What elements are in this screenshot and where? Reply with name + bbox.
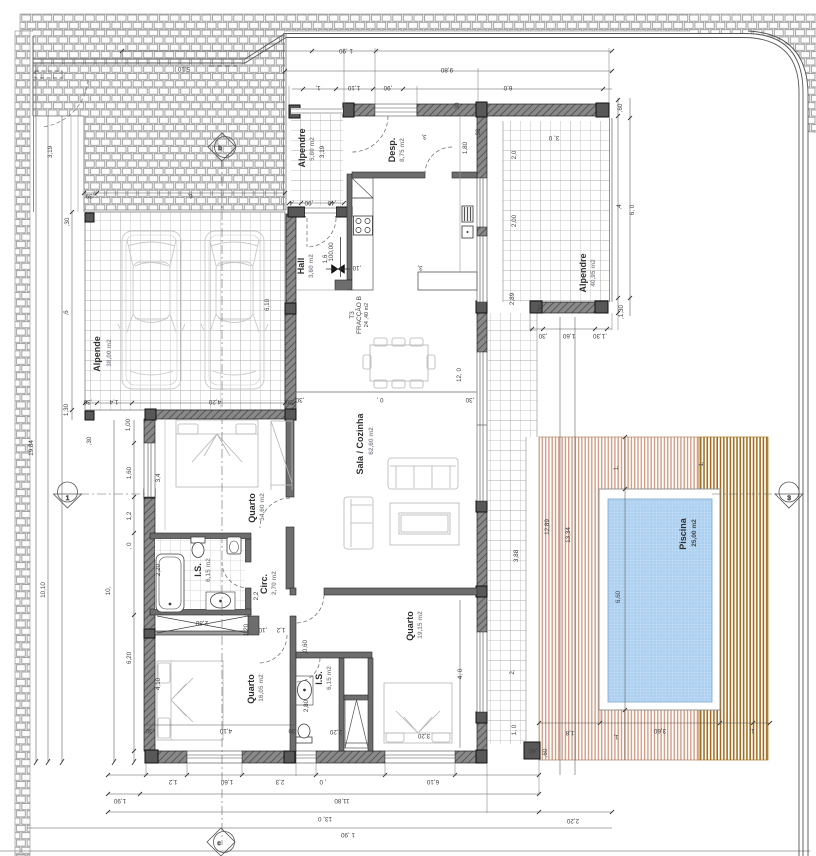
- svg-text:24 ,40 m2: 24 ,40 m2: [364, 303, 370, 327]
- svg-text:3,: 3,: [421, 133, 427, 140]
- svg-text:3,4: 3,4: [155, 473, 162, 482]
- svg-text:,30: ,30: [538, 332, 547, 339]
- svg-text:6,15 m2: 6,15 m2: [205, 558, 212, 582]
- svg-text:1,: 1,: [613, 465, 620, 471]
- svg-text:6, 0: 6, 0: [629, 204, 636, 215]
- svg-text:4,10: 4,10: [219, 727, 232, 734]
- svg-text:14,60 m2: 14,60 m2: [259, 493, 266, 521]
- svg-text:, 0: , 0: [126, 542, 133, 549]
- svg-text:1,80: 1,80: [462, 141, 469, 154]
- svg-text:13, 0: 13, 0: [318, 815, 333, 822]
- svg-text:3,19: 3,19: [319, 145, 326, 158]
- svg-text:,40: ,40: [327, 199, 336, 206]
- svg-text:b: b: [218, 145, 222, 152]
- svg-text:62,60 m2: 62,60 m2: [368, 427, 375, 455]
- svg-text:I.S.: I.S.: [314, 671, 324, 685]
- svg-text:2,80: 2,80: [303, 699, 310, 712]
- svg-text:,30: ,30: [475, 128, 482, 137]
- svg-text:T3: T3: [349, 311, 356, 319]
- svg-text:,30: ,30: [285, 398, 294, 405]
- svg-text:13,34: 13,34: [565, 527, 572, 543]
- svg-text:11,80: 11,80: [334, 797, 350, 804]
- svg-text:10,: 10,: [105, 586, 112, 595]
- svg-text:4,20: 4,20: [208, 398, 221, 405]
- svg-text:2,80: 2,80: [195, 619, 208, 626]
- svg-text:1,: 1,: [315, 84, 321, 91]
- svg-text:Circ.: Circ.: [259, 574, 269, 594]
- svg-text:2,3: 2,3: [275, 778, 284, 785]
- svg-text:30: 30: [454, 102, 461, 110]
- svg-text:,60: ,60: [528, 747, 537, 754]
- svg-text:8,75 m2: 8,75 m2: [399, 138, 406, 162]
- svg-text:2,20: 2,20: [566, 817, 579, 824]
- svg-text:1,20: 1,20: [243, 623, 250, 636]
- svg-text:19,84: 19,84: [28, 440, 35, 456]
- svg-text:,30: ,30: [64, 217, 71, 226]
- svg-text:1,10: 1,10: [347, 84, 360, 91]
- svg-text:2,20: 2,20: [155, 563, 162, 576]
- svg-text:16,05 m2: 16,05 m2: [258, 674, 265, 702]
- svg-text:,6: ,6: [63, 310, 70, 316]
- svg-text:2,89: 2,89: [509, 292, 516, 305]
- svg-text:4,10: 4,10: [155, 677, 162, 690]
- svg-text:1,90: 1,90: [113, 797, 126, 804]
- svg-text:1,2: 1,2: [276, 626, 285, 633]
- svg-text:5,10: 5,10: [177, 65, 190, 72]
- svg-text:1,00: 1,00: [125, 418, 132, 431]
- svg-text:Quarto: Quarto: [246, 674, 256, 704]
- svg-text:2,70 m2: 2,70 m2: [271, 571, 278, 595]
- svg-text:3,88: 3,88: [513, 549, 520, 562]
- svg-text:1 ,90: 1 ,90: [341, 831, 356, 838]
- svg-text:,60: ,60: [617, 103, 624, 112]
- svg-text:FRACÇÃO B: FRACÇÃO B: [354, 296, 363, 334]
- svg-text:,39: ,39: [85, 192, 94, 199]
- svg-text:Desp.: Desp.: [387, 138, 397, 163]
- svg-text:1,8: 1,8: [565, 729, 574, 736]
- svg-text:,30: ,30: [465, 396, 474, 403]
- svg-text:1,2: 1,2: [168, 778, 177, 785]
- svg-text:6,60: 6,60: [615, 590, 622, 603]
- svg-text:6,: 6,: [187, 192, 193, 199]
- svg-text:12,89: 12,89: [544, 519, 551, 535]
- svg-text:,1,30: ,1,30: [618, 305, 625, 320]
- svg-text:40,95 m2: 40,95 m2: [590, 259, 597, 287]
- svg-text:5,80 m2: 5,80 m2: [309, 137, 316, 161]
- svg-text:6,0: 6,0: [503, 84, 512, 91]
- svg-text:6,20: 6,20: [126, 651, 133, 664]
- svg-text:2,20: 2,20: [329, 728, 342, 735]
- svg-text:3,60: 3,60: [653, 727, 666, 734]
- svg-text:I.S.: I.S.: [193, 563, 203, 577]
- svg-text:2,2: 2,2: [253, 591, 260, 600]
- svg-text:1, 0: 1, 0: [511, 724, 518, 735]
- svg-text:1,60: 1,60: [220, 778, 233, 785]
- svg-text:0 ,: 0 ,: [376, 396, 383, 403]
- svg-text:1,: 1,: [749, 727, 755, 734]
- svg-text:3, 0: 3, 0: [548, 134, 559, 141]
- svg-text:,90: ,90: [304, 199, 313, 206]
- svg-text:,30: ,30: [295, 396, 304, 403]
- svg-text:1,30: 1,30: [63, 403, 70, 416]
- svg-text:10,10: 10,10: [40, 582, 47, 598]
- svg-text:1: 1: [66, 495, 70, 502]
- svg-text:Sala / Cozinha: Sala / Cozinha: [355, 412, 365, 474]
- svg-text:6,15 m2: 6,15 m2: [326, 666, 333, 690]
- svg-text:30: 30: [537, 304, 544, 312]
- svg-text:1,4: 1,4: [109, 398, 118, 405]
- svg-text:1,: 1,: [698, 461, 705, 467]
- svg-text:9,80: 9,80: [440, 66, 453, 73]
- svg-text:,60: ,60: [542, 748, 549, 757]
- svg-text:Quarto: Quarto: [405, 611, 415, 641]
- svg-text:1,2: 1,2: [126, 511, 133, 520]
- svg-text:2,00: 2,00: [511, 214, 518, 227]
- svg-text:3,20: 3,20: [417, 732, 430, 739]
- svg-text:Alpende: Alpende: [92, 336, 102, 372]
- svg-text:3,60 m2: 3,60 m2: [308, 254, 315, 278]
- svg-text:1,60: 1,60: [562, 332, 575, 339]
- svg-text:2,0: 2,0: [511, 150, 518, 159]
- svg-text:1 ,90: 1 ,90: [339, 47, 354, 54]
- svg-text:,30: ,30: [145, 727, 154, 734]
- svg-text:Alpendre: Alpendre: [578, 253, 588, 292]
- svg-text:4, 0: 4, 0: [457, 668, 464, 679]
- svg-text:,10: ,10: [352, 264, 361, 271]
- svg-text:38,00 m2: 38,00 m2: [106, 339, 113, 367]
- svg-text:,90: ,90: [383, 84, 392, 91]
- svg-text:, 0: , 0: [319, 778, 326, 785]
- svg-text:25,00 m2: 25,00 m2: [691, 519, 698, 547]
- svg-text:Quarto: Quarto: [247, 493, 257, 523]
- svg-text:19,15 m2: 19,15 m2: [417, 611, 424, 639]
- svg-text:1,: 1,: [613, 733, 619, 740]
- svg-text:2,: 2,: [509, 669, 516, 675]
- svg-text:,4: ,4: [289, 199, 295, 206]
- svg-text:,1,30: ,1,30: [593, 332, 608, 339]
- svg-text:12, 0: 12, 0: [456, 368, 463, 383]
- svg-text:30: 30: [288, 727, 296, 734]
- svg-text:6,10: 6,10: [426, 778, 439, 785]
- svg-text:Hall: Hall: [296, 258, 306, 275]
- svg-text:Alpendre: Alpendre: [297, 128, 307, 167]
- svg-text:Piscina: Piscina: [678, 517, 688, 550]
- svg-text:3,: 3,: [417, 264, 423, 271]
- svg-text:,30: ,30: [83, 398, 92, 405]
- svg-text:,10: ,10: [258, 626, 267, 633]
- svg-text:6,10: 6,10: [264, 298, 271, 311]
- svg-text:,4: ,4: [616, 204, 623, 210]
- svg-text:,30: ,30: [86, 436, 93, 445]
- svg-text:3: 3: [787, 495, 791, 502]
- svg-text:1,60: 1,60: [126, 466, 133, 479]
- svg-text:100,00: 100,00: [328, 242, 335, 262]
- svg-text:,0,60: ,0,60: [302, 640, 309, 655]
